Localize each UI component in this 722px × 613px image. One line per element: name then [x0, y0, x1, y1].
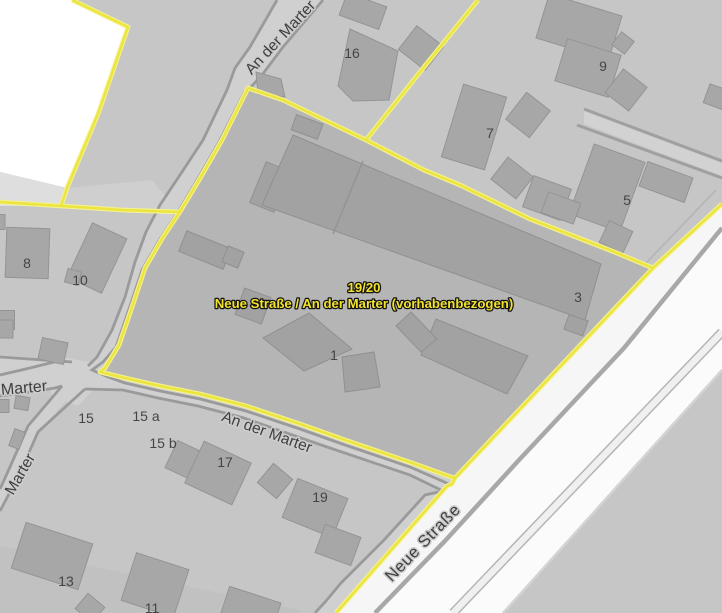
svg-text:3: 3: [574, 289, 582, 305]
svg-text:19: 19: [312, 489, 328, 505]
svg-text:15 a: 15 a: [132, 408, 159, 424]
svg-text:11: 11: [145, 600, 160, 613]
svg-text:5: 5: [623, 192, 631, 208]
svg-text:15 b: 15 b: [149, 435, 176, 451]
svg-text:7: 7: [486, 125, 494, 141]
svg-text:15: 15: [78, 410, 94, 426]
svg-text:17: 17: [217, 454, 233, 470]
svg-text:9: 9: [599, 58, 607, 74]
svg-text:1: 1: [330, 347, 338, 363]
svg-text:13: 13: [58, 573, 74, 589]
svg-text:10: 10: [72, 272, 88, 288]
svg-text:Neue Straße / An der Marter (v: Neue Straße / An der Marter (vorhabenbez…: [215, 296, 513, 311]
svg-text:16: 16: [344, 45, 360, 61]
svg-text:19/20: 19/20: [347, 280, 380, 295]
svg-text:8: 8: [23, 255, 31, 271]
